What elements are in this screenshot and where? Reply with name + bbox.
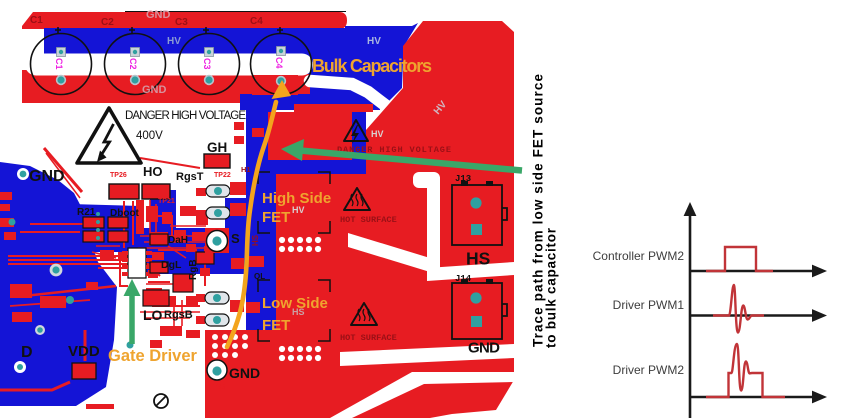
svg-text:C4: C4	[250, 16, 263, 27]
svg-text:Dboot: Dboot	[110, 208, 140, 219]
svg-text:HO: HO	[143, 164, 163, 179]
svg-text:VDD: VDD	[68, 343, 100, 360]
svg-text:Gate Driver: Gate Driver	[108, 347, 198, 365]
svg-text:R21: R21	[77, 207, 96, 218]
svg-text:HV: HV	[167, 36, 181, 47]
svg-text:S: S	[231, 231, 240, 246]
svg-text:GND: GND	[229, 365, 260, 381]
svg-text:DaH: DaH	[168, 235, 188, 246]
svg-text:J14: J14	[455, 274, 472, 284]
svg-text:C2: C2	[101, 17, 114, 28]
svg-text:Controller PWM2: Controller PWM2	[593, 249, 685, 263]
svg-text:Driver PWM2: Driver PWM2	[613, 363, 685, 377]
svg-text:HV: HV	[367, 36, 381, 47]
svg-text:GND: GND	[29, 168, 65, 185]
svg-text:RgsT: RgsT	[176, 171, 204, 183]
svg-text:TP33: TP33	[209, 384, 226, 391]
svg-text:TP21: TP21	[158, 198, 175, 205]
svg-text:RgsB: RgsB	[164, 309, 193, 321]
svg-text:QL: QL	[254, 272, 265, 281]
svg-text:HV: HV	[371, 129, 384, 139]
svg-text:GND: GND	[146, 9, 171, 21]
svg-text:FET: FET	[262, 209, 290, 226]
svg-text:GND: GND	[468, 340, 500, 357]
svg-text:Low Side: Low Side	[262, 295, 328, 312]
svg-text:HS: HS	[251, 234, 260, 246]
svg-text:H1: H1	[241, 165, 251, 174]
svg-text:HOT SURFACE: HOT SURFACE	[340, 215, 397, 225]
svg-text:HOT SURFACE: HOT SURFACE	[340, 333, 397, 343]
svg-text:GH: GH	[207, 140, 227, 155]
svg-text:DANGER HIGH VOLTAGE: DANGER HIGH VOLTAGE	[125, 110, 246, 122]
svg-text:C1: C1	[54, 58, 64, 70]
svg-text:J13: J13	[455, 174, 471, 184]
svg-text:FET: FET	[262, 317, 290, 334]
svg-text:TP22: TP22	[214, 172, 231, 179]
svg-text:HS: HS	[466, 249, 490, 269]
svg-text:High Side: High Side	[262, 190, 331, 207]
svg-text:RgB: RgB	[188, 259, 199, 280]
svg-text:to bulk capacitor: to bulk capacitor	[544, 227, 559, 348]
svg-text:TP26: TP26	[110, 172, 127, 179]
svg-text:Bulk Capacitors: Bulk Capacitors	[312, 56, 432, 76]
svg-text:C2: C2	[128, 58, 138, 70]
svg-text:GND: GND	[142, 84, 167, 96]
svg-text:C4: C4	[274, 57, 284, 69]
svg-text:Driver PWM1: Driver PWM1	[613, 298, 685, 312]
svg-text:C1: C1	[30, 15, 43, 26]
svg-text:LO: LO	[143, 307, 163, 323]
svg-text:400V: 400V	[136, 130, 163, 142]
svg-text:DgL: DgL	[161, 259, 182, 271]
svg-text:D: D	[21, 344, 33, 361]
svg-text:C3: C3	[202, 58, 212, 70]
svg-text:C3: C3	[175, 17, 188, 28]
